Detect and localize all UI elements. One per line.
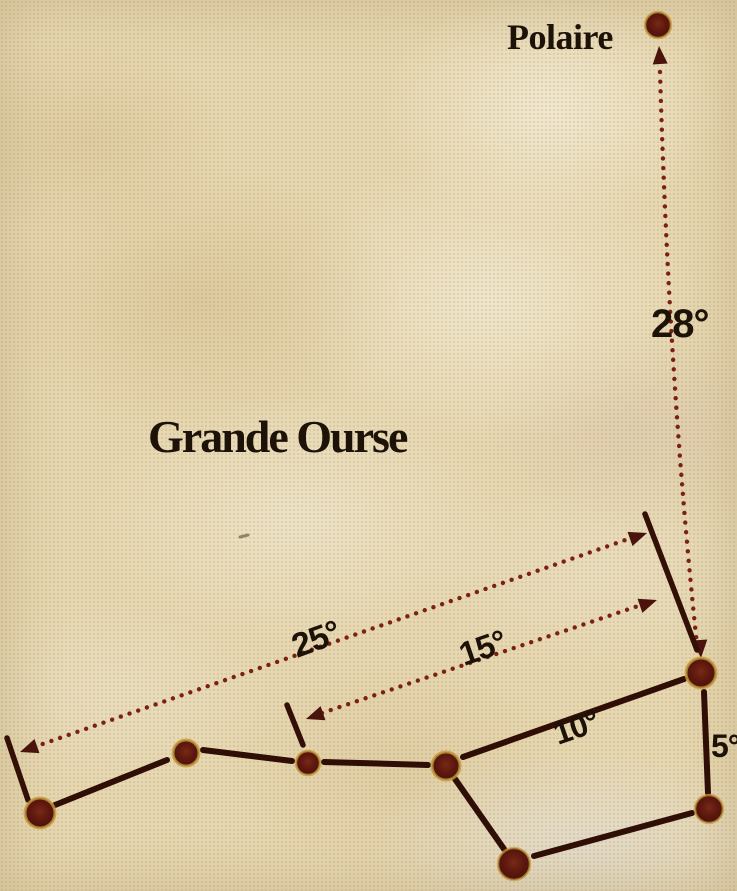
- star-megrez: [432, 752, 460, 780]
- line-megrez-phecda: [455, 779, 504, 849]
- star-phecda: [498, 848, 530, 880]
- line-alioth-megrez: [324, 762, 428, 765]
- polaris-label: Polaire: [507, 17, 613, 57]
- angle-label-5: 5°: [711, 728, 737, 764]
- tick-at-alkaid: [7, 738, 28, 800]
- arrowhead-left-15deg: [304, 706, 326, 726]
- dotted-line-28deg: [660, 72, 697, 645]
- star-alkaid: [25, 798, 55, 828]
- angle-label-15: 15°: [454, 622, 510, 672]
- arrowhead-right-25deg: [628, 526, 650, 546]
- paper-speck: [240, 535, 248, 537]
- star-alioth: [296, 751, 320, 775]
- arrowhead-left-25deg: [18, 739, 40, 759]
- line-alkaid-mizar: [55, 760, 167, 805]
- line-mizar-alioth: [203, 750, 292, 761]
- arrowhead-right-15deg: [638, 593, 660, 613]
- parchment-sky-chart: Polaire Grande Ourse 28° 25° 15° 10° 5°: [0, 0, 737, 891]
- tick-at-alioth: [287, 705, 303, 745]
- angle-label-28: 28°: [651, 302, 709, 346]
- star-mizar: [173, 740, 199, 766]
- big-dipper-polaris-diagram: Polaire Grande Ourse 28° 25° 15° 10° 5°: [0, 0, 737, 891]
- star-polaris: [645, 12, 671, 38]
- line-merak-phecda: [534, 813, 692, 856]
- arrow-28deg-dubhe-to-polaris: [652, 46, 709, 659]
- constellation-label: Grande Ourse: [148, 411, 408, 462]
- star-dubhe: [686, 658, 716, 688]
- star-merak: [695, 795, 723, 823]
- line-dubhe-merak: [704, 692, 708, 793]
- tick-at-dubhe: [645, 514, 697, 650]
- arrowhead-up-polaris: [652, 46, 668, 65]
